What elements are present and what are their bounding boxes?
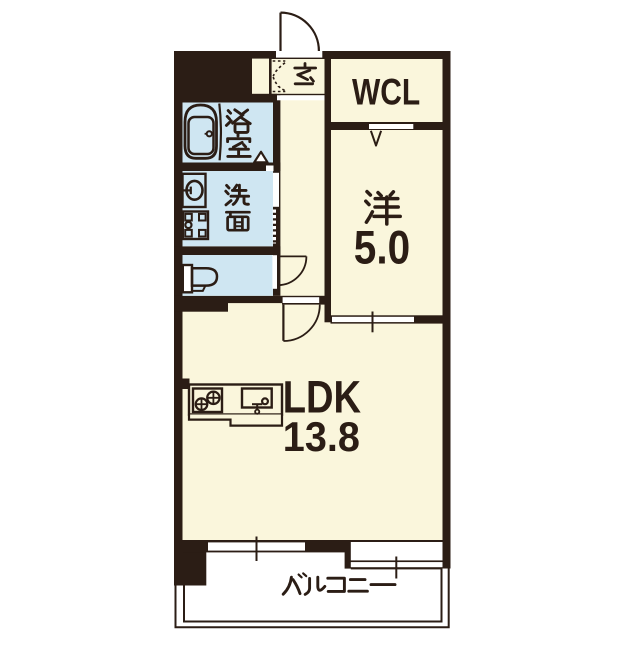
svg-text:5.0: 5.0 (354, 222, 410, 274)
svg-text:WCL: WCL (352, 73, 420, 114)
svg-text:13.8: 13.8 (283, 413, 360, 460)
